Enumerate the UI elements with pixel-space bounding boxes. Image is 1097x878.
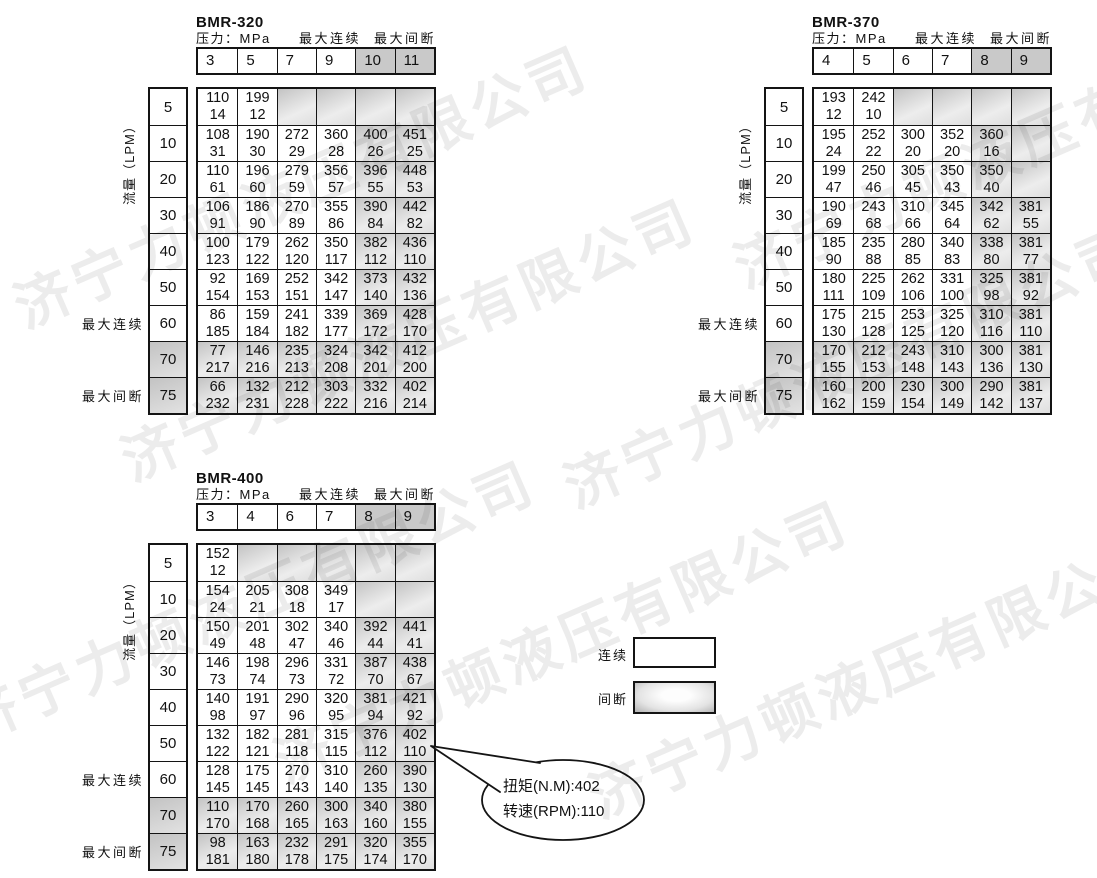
table-subtitle: 压力：MPa 最大连续 最大间断 — [196, 487, 436, 503]
torque-value: 381 — [1012, 235, 1050, 252]
flow-row-label: 30 — [150, 197, 186, 233]
torque-value: 441 — [396, 619, 434, 636]
torque-value: 381 — [1012, 271, 1050, 288]
torque-value: 260 — [356, 763, 394, 780]
flow-row-label: 75 — [150, 377, 186, 413]
speed-value: 154 — [894, 396, 932, 413]
torque-value: 428 — [396, 307, 434, 324]
data-cell: 382112 — [355, 233, 394, 269]
speed-value: 109 — [854, 288, 892, 305]
speed-value: 142 — [972, 396, 1010, 413]
data-cell — [893, 89, 932, 125]
data-cell: 315115 — [316, 725, 355, 761]
torque-value: 242 — [854, 90, 892, 107]
data-cell: 38770 — [355, 653, 394, 689]
pressure-unit-label: 压力：MPa — [196, 484, 271, 503]
data-cell — [355, 581, 394, 617]
data-cell: 14673 — [198, 653, 237, 689]
speed-value: 214 — [396, 396, 434, 413]
torque-value: 349 — [317, 583, 355, 600]
speed-value: 24 — [198, 600, 237, 617]
data-cell: 44282 — [395, 197, 434, 233]
data-cell: 170155 — [814, 341, 853, 377]
speed-value: 55 — [356, 180, 394, 197]
data-cell: 332216 — [355, 377, 394, 413]
torque-value: 132 — [198, 727, 237, 744]
torque-value: 432 — [396, 271, 434, 288]
data-cell: 30818 — [277, 581, 316, 617]
speed-value: 153 — [238, 288, 276, 305]
data-cell: 262120 — [277, 233, 316, 269]
torque-value: 421 — [396, 691, 434, 708]
data-cell: 27089 — [277, 197, 316, 233]
flow-row-label: 40 — [766, 233, 802, 269]
torque-value: 108 — [198, 127, 237, 144]
speed-value: 180 — [238, 852, 276, 869]
torque-value: 305 — [894, 163, 932, 180]
speed-value: 55 — [1012, 216, 1050, 233]
speed-value: 128 — [854, 324, 892, 341]
max-intermittent-column-label: 最大间断 — [374, 28, 436, 47]
torque-value: 381 — [1012, 343, 1050, 360]
torque-value: 175 — [238, 763, 276, 780]
data-cell: 92154 — [198, 269, 237, 305]
torque-value: 345 — [933, 199, 971, 216]
data-cell: 86185 — [198, 305, 237, 341]
torque-value: 315 — [317, 727, 355, 744]
torque-value: 198 — [238, 655, 276, 672]
data-cell: 30020 — [893, 125, 932, 161]
torque-value: 212 — [278, 379, 316, 396]
torque-value: 308 — [278, 583, 316, 600]
flow-row-label: 30 — [766, 197, 802, 233]
data-cell: 19874 — [237, 653, 276, 689]
torque-value: 66 — [198, 379, 237, 396]
max-continuous-row-label: 最大连续 — [698, 314, 760, 333]
data-cell: 34917 — [316, 581, 355, 617]
torque-value: 110 — [198, 163, 237, 180]
torque-value: 270 — [278, 199, 316, 216]
speed-value: 170 — [198, 816, 237, 833]
data-cell: 260135 — [355, 761, 394, 797]
speed-value: 148 — [894, 360, 932, 377]
max-intermittent-row-label: 最大间断 — [82, 842, 144, 861]
torque-value: 132 — [238, 379, 276, 396]
data-cell: 30247 — [277, 617, 316, 653]
torque-value: 412 — [396, 343, 434, 360]
data-cell: 19197 — [237, 689, 276, 725]
flow-row-label: 5 — [150, 89, 186, 125]
torque-value: 253 — [894, 307, 932, 324]
data-cell: 29673 — [277, 653, 316, 689]
speed-value: 67 — [396, 672, 434, 689]
torque-value: 140 — [198, 691, 237, 708]
max-continuous-column-label: 最大连续 — [299, 28, 361, 47]
speed-value: 159 — [854, 396, 892, 413]
datasheet-page: 济宁力顿液压有限公司济宁力顿液压有限公司济宁力顿液压有限公司济宁力顿液压有限公司… — [0, 0, 1097, 878]
speed-value: 26 — [356, 144, 394, 161]
speed-value: 228 — [278, 396, 316, 413]
data-cell: 163180 — [237, 833, 276, 869]
torque-value: 350 — [933, 163, 971, 180]
torque-value: 390 — [356, 199, 394, 216]
speed-value: 145 — [238, 780, 276, 797]
speed-value: 122 — [238, 252, 276, 269]
torque-value: 356 — [317, 163, 355, 180]
torque-value: 436 — [396, 235, 434, 252]
torque-value: 281 — [278, 727, 316, 744]
torque-value: 262 — [278, 235, 316, 252]
speed-value: 74 — [238, 672, 276, 689]
data-cell: 18590 — [814, 233, 853, 269]
data-cell: 215128 — [853, 305, 892, 341]
torque-value: 150 — [198, 619, 237, 636]
torque-value: 451 — [396, 127, 434, 144]
table-subtitle: 压力：MPa 最大连续 最大间断 — [196, 31, 436, 47]
speed-value: 118 — [278, 744, 316, 761]
torque-value: 180 — [814, 271, 853, 288]
data-cell: 35040 — [971, 161, 1010, 197]
flow-axis-label: 流量（LPM） — [119, 563, 135, 673]
speed-value: 69 — [814, 216, 853, 233]
speed-value: 147 — [317, 288, 355, 305]
torque-value: 300 — [894, 127, 932, 144]
speed-value: 21 — [238, 600, 276, 617]
torque-value: 190 — [814, 199, 853, 216]
torque-value: 302 — [278, 619, 316, 636]
data-cell: 20148 — [237, 617, 276, 653]
torque-value: 303 — [317, 379, 355, 396]
data-cell: 44141 — [395, 617, 434, 653]
data-cell: 15424 — [198, 581, 237, 617]
torque-value: 201 — [238, 619, 276, 636]
speed-value: 28 — [317, 144, 355, 161]
pressure-unit-label: 压力：MPa — [196, 28, 271, 47]
data-cell: 252151 — [277, 269, 316, 305]
flow-row-label: 60 — [766, 305, 802, 341]
speed-value: 177 — [317, 324, 355, 341]
speed-value: 174 — [356, 852, 394, 869]
data-cell — [1011, 161, 1050, 197]
speed-value: 137 — [1012, 396, 1050, 413]
torque-value: 338 — [972, 235, 1010, 252]
torque-value: 332 — [356, 379, 394, 396]
torque-value: 199 — [814, 163, 853, 180]
data-cell — [932, 89, 971, 125]
data-cell: 428170 — [395, 305, 434, 341]
data-cell: 331100 — [932, 269, 971, 305]
torque-value: 106 — [198, 199, 237, 216]
torque-value: 296 — [278, 655, 316, 672]
flow-row-label: 5 — [766, 89, 802, 125]
torque-value: 340 — [356, 799, 394, 816]
speed-value: 222 — [317, 396, 355, 413]
data-cell: 320174 — [355, 833, 394, 869]
speed-value: 116 — [972, 324, 1010, 341]
data-cell — [395, 89, 434, 125]
speed-value: 120 — [278, 252, 316, 269]
torque-value: 331 — [317, 655, 355, 672]
speed-value: 182 — [278, 324, 316, 341]
speed-value: 47 — [814, 180, 853, 197]
speed-value: 154 — [198, 288, 237, 305]
torque-value: 369 — [356, 307, 394, 324]
speed-value: 64 — [933, 216, 971, 233]
torque-value: 193 — [814, 90, 853, 107]
speed-value: 83 — [933, 252, 971, 269]
speed-value: 130 — [814, 324, 853, 341]
data-cell: 15049 — [198, 617, 237, 653]
pressure-header-cell: 7 — [932, 49, 971, 73]
data-cell: 175145 — [237, 761, 276, 797]
data-cell: 10831 — [198, 125, 237, 161]
data-cell: 310116 — [971, 305, 1010, 341]
callout-speed-line: 转速(RPM):110 — [503, 799, 604, 824]
data-cell: 281118 — [277, 725, 316, 761]
data-cell: 77217 — [198, 341, 237, 377]
pressure-header-row: 35791011 — [196, 47, 436, 75]
torque-value: 381 — [1012, 307, 1050, 324]
torque-value: 200 — [854, 379, 892, 396]
speed-value: 153 — [854, 360, 892, 377]
speed-value: 73 — [278, 672, 316, 689]
speed-value: 48 — [238, 636, 276, 653]
speed-value: 98 — [972, 288, 1010, 305]
speed-value: 200 — [396, 360, 434, 377]
torque-value: 320 — [356, 835, 394, 852]
speed-value: 181 — [198, 852, 237, 869]
max-continuous-row-label: 最大连续 — [82, 314, 144, 333]
torque-value: 232 — [278, 835, 316, 852]
max-continuous-column-label: 最大连续 — [915, 28, 977, 47]
data-cell: 180111 — [814, 269, 853, 305]
torque-value: 290 — [278, 691, 316, 708]
pressure-unit-label: 压力：MPa — [812, 28, 887, 47]
data-cell: 381137 — [1011, 377, 1050, 413]
data-cell: 35657 — [316, 161, 355, 197]
max-continuous-column-label: 最大连续 — [299, 484, 361, 503]
torque-value: 392 — [356, 619, 394, 636]
max-intermittent-column-label: 最大间断 — [990, 28, 1052, 47]
speed-value: 62 — [972, 216, 1010, 233]
torque-value: 252 — [278, 271, 316, 288]
torque-value: 339 — [317, 307, 355, 324]
speed-value: 135 — [356, 780, 394, 797]
data-cell: 39084 — [355, 197, 394, 233]
speed-value: 90 — [238, 216, 276, 233]
torque-value: 170 — [814, 343, 853, 360]
speed-value: 213 — [278, 360, 316, 377]
speed-value: 18 — [278, 600, 316, 617]
data-cell — [277, 89, 316, 125]
data-cell — [355, 89, 394, 125]
data-cell: 270143 — [277, 761, 316, 797]
data-cell: 110170 — [198, 797, 237, 833]
torque-value: 163 — [238, 835, 276, 852]
data-cell: 340160 — [355, 797, 394, 833]
pressure-header-cell: 6 — [893, 49, 932, 73]
speed-value: 155 — [814, 360, 853, 377]
torque-value: 324 — [317, 343, 355, 360]
torque-value: 279 — [278, 163, 316, 180]
data-cell: 381130 — [1011, 341, 1050, 377]
torque-value: 381 — [1012, 379, 1050, 396]
torque-value: 262 — [894, 271, 932, 288]
speed-value: 184 — [238, 324, 276, 341]
speed-value: 143 — [933, 360, 971, 377]
pressure-header-cell: 5 — [237, 49, 276, 73]
speed-value: 12 — [814, 107, 853, 124]
data-cell: 42192 — [395, 689, 434, 725]
data-cell: 32095 — [316, 689, 355, 725]
data-cell: 324208 — [316, 341, 355, 377]
pressure-header-row: 456789 — [812, 47, 1052, 75]
speed-value: 61 — [198, 180, 237, 197]
torque-value: 146 — [238, 343, 276, 360]
flow-row-label: 30 — [150, 653, 186, 689]
data-cell: 43867 — [395, 653, 434, 689]
data-cell: 300163 — [316, 797, 355, 833]
data-cell: 18690 — [237, 197, 276, 233]
data-cell: 19069 — [814, 197, 853, 233]
callout-torque-line: 扭矩(N.M):402 — [503, 774, 604, 799]
data-cell — [355, 545, 394, 581]
data-grid: 1101419912108311903027229360284002645125… — [196, 87, 436, 415]
flow-row-labels: 51020304050607075 — [764, 87, 804, 415]
torque-value: 186 — [238, 199, 276, 216]
speed-value: 110 — [1012, 324, 1050, 341]
data-cell: 31066 — [893, 197, 932, 233]
torque-value: 243 — [894, 343, 932, 360]
speed-value: 82 — [396, 216, 434, 233]
speed-value: 12 — [198, 563, 237, 580]
torque-value: 250 — [854, 163, 892, 180]
flow-row-label: 10 — [766, 125, 802, 161]
data-cell: 11061 — [198, 161, 237, 197]
data-cell: 376112 — [355, 725, 394, 761]
speed-value: 95 — [317, 708, 355, 725]
data-cell: 260165 — [277, 797, 316, 833]
speed-value: 17 — [317, 600, 355, 617]
data-cell: 36016 — [971, 125, 1010, 161]
speed-value: 110 — [396, 252, 434, 269]
speed-value: 121 — [238, 744, 276, 761]
data-cell: 34046 — [316, 617, 355, 653]
speed-value: 43 — [933, 180, 971, 197]
data-cell: 38155 — [1011, 197, 1050, 233]
speed-value: 112 — [356, 252, 394, 269]
speed-value: 140 — [356, 288, 394, 305]
data-cell: 35043 — [932, 161, 971, 197]
speed-value: 84 — [356, 216, 394, 233]
torque-value: 196 — [238, 163, 276, 180]
data-cell: 310140 — [316, 761, 355, 797]
torque-value: 340 — [933, 235, 971, 252]
data-cell: 32598 — [971, 269, 1010, 305]
data-cell: 33880 — [971, 233, 1010, 269]
torque-value: 169 — [238, 271, 276, 288]
speed-value: 216 — [356, 396, 394, 413]
speed-value: 149 — [933, 396, 971, 413]
torque-value: 205 — [238, 583, 276, 600]
data-cell: 44853 — [395, 161, 434, 197]
speed-value: 22 — [854, 144, 892, 161]
torque-value: 342 — [972, 199, 1010, 216]
speed-value: 98 — [198, 708, 237, 725]
data-cell: 40026 — [355, 125, 394, 161]
data-cell: 35220 — [932, 125, 971, 161]
data-cell — [971, 89, 1010, 125]
pressure-header-cell: 3 — [198, 49, 237, 73]
data-cell: 15212 — [198, 545, 237, 581]
speed-value: 96 — [278, 708, 316, 725]
data-cell: 10691 — [198, 197, 237, 233]
data-cell: 241182 — [277, 305, 316, 341]
data-cell: 291175 — [316, 833, 355, 869]
flow-row-label: 50 — [150, 725, 186, 761]
torque-value: 402 — [396, 379, 434, 396]
speed-value: 232 — [198, 396, 237, 413]
speed-value: 68 — [854, 216, 892, 233]
torque-value: 225 — [854, 271, 892, 288]
torque-value: 152 — [198, 546, 237, 563]
data-cell — [316, 545, 355, 581]
data-cell: 182121 — [237, 725, 276, 761]
speed-value: 94 — [356, 708, 394, 725]
speed-value: 168 — [238, 816, 276, 833]
flow-row-label: 75 — [766, 377, 802, 413]
torque-value: 270 — [278, 763, 316, 780]
data-cell: 175130 — [814, 305, 853, 341]
speed-value: 130 — [1012, 360, 1050, 377]
speed-value: 165 — [278, 816, 316, 833]
torque-value: 195 — [814, 127, 853, 144]
speed-value: 122 — [198, 744, 237, 761]
torque-value: 110 — [198, 90, 237, 107]
data-cell: 45125 — [395, 125, 434, 161]
torque-value: 310 — [317, 763, 355, 780]
torque-value: 175 — [814, 307, 853, 324]
speed-value: 40 — [972, 180, 1010, 197]
torque-value: 235 — [854, 235, 892, 252]
data-cell: 212228 — [277, 377, 316, 413]
flow-row-label: 10 — [150, 581, 186, 617]
data-cell: 235213 — [277, 341, 316, 377]
speed-value: 77 — [1012, 252, 1050, 269]
data-cell: 262106 — [893, 269, 932, 305]
speed-value: 125 — [894, 324, 932, 341]
data-cell: 29096 — [277, 689, 316, 725]
flow-row-label: 60 — [150, 761, 186, 797]
data-cell: 300136 — [971, 341, 1010, 377]
torque-value: 325 — [933, 307, 971, 324]
torque-value: 86 — [198, 307, 237, 324]
torque-value: 360 — [972, 127, 1010, 144]
speed-value: 25 — [396, 144, 434, 161]
torque-value: 310 — [894, 199, 932, 216]
data-cell — [237, 545, 276, 581]
speed-value: 59 — [278, 180, 316, 197]
torque-value: 128 — [198, 763, 237, 780]
data-cell: 179122 — [237, 233, 276, 269]
speed-value: 44 — [356, 636, 394, 653]
data-cell: 39655 — [355, 161, 394, 197]
speed-value: 106 — [894, 288, 932, 305]
speed-value: 20 — [894, 144, 932, 161]
speed-value: 201 — [356, 360, 394, 377]
data-cell: 132231 — [237, 377, 276, 413]
max-continuous-row-label: 最大连续 — [82, 770, 144, 789]
